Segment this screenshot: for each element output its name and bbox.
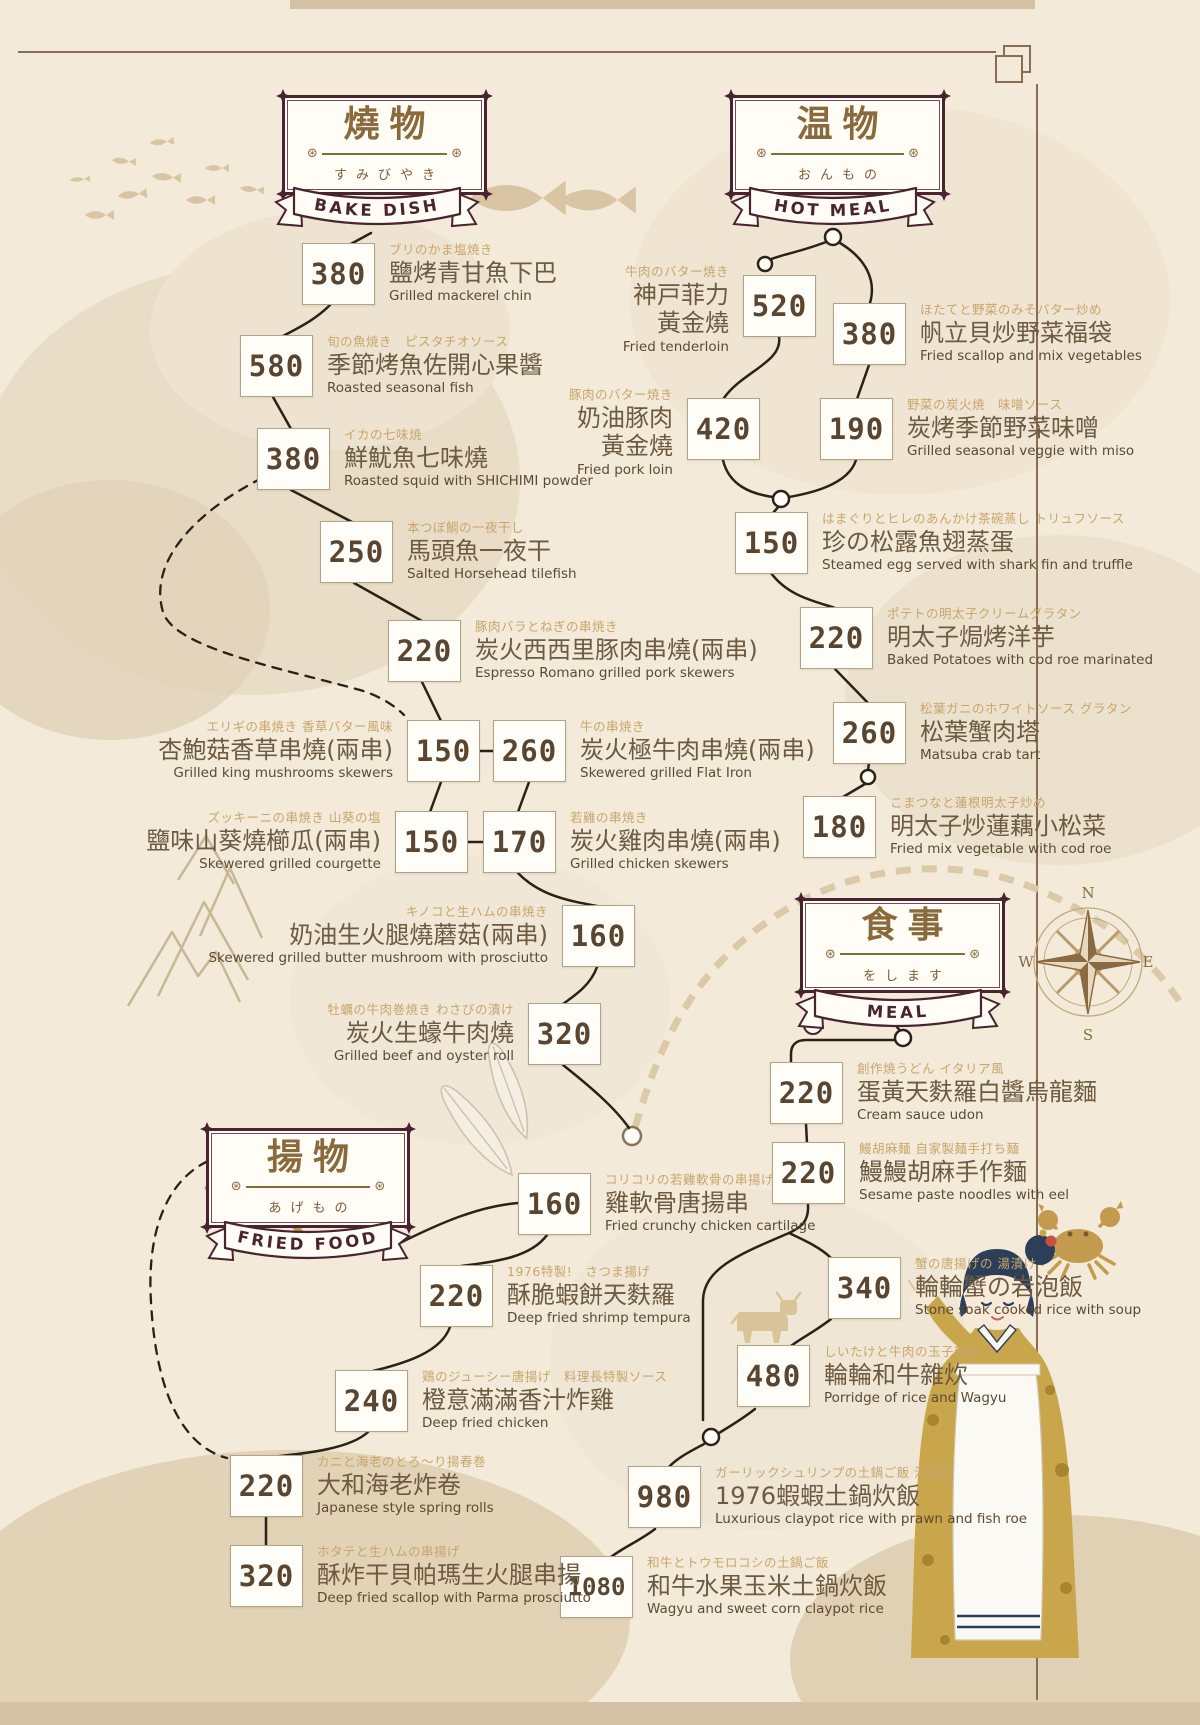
- waitress-illustration: [906, 1230, 1079, 1659]
- compass-n: N: [1081, 884, 1094, 902]
- track-end-node: [623, 1127, 641, 1145]
- mountains-icon: [128, 836, 262, 1006]
- shrimp-icon: [238, 1175, 313, 1235]
- menu-page: N E S W: [0, 0, 1200, 1725]
- map-underlay: N E S W: [0, 0, 1200, 1725]
- wave-squiggle-icon: [206, 1184, 240, 1204]
- compass-icon: N E S W: [1018, 884, 1153, 1044]
- railroad-track-path: [635, 869, 1180, 1128]
- page-top-strip: [290, 0, 1035, 9]
- big-fish-icon: [470, 181, 566, 216]
- compass-e: E: [1143, 953, 1154, 971]
- compass-s: S: [1083, 1026, 1093, 1044]
- page-bottom-strip: [0, 1702, 1200, 1725]
- compass-w: W: [1018, 953, 1034, 971]
- fish-school-icon: [70, 137, 636, 220]
- folded-corner-icon: [996, 46, 1030, 82]
